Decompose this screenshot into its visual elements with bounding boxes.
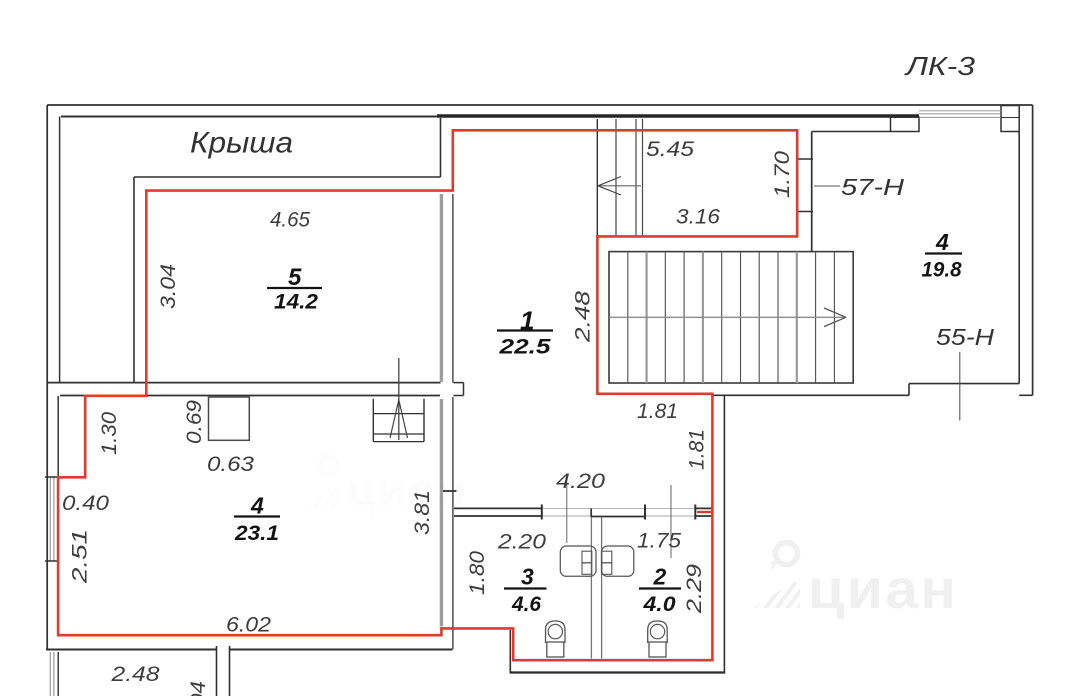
svg-text:4: 4 [250, 493, 264, 519]
svg-text:2.48: 2.48 [110, 662, 159, 686]
svg-text:4.20: 4.20 [556, 469, 605, 493]
svg-text:19.8: 19.8 [922, 259, 962, 282]
svg-text:0.63: 0.63 [207, 452, 254, 476]
svg-text:1.75: 1.75 [637, 529, 682, 553]
svg-text:4: 4 [935, 229, 949, 255]
svg-text:4.6: 4.6 [511, 593, 541, 616]
svg-text:циан: циан [808, 557, 958, 620]
svg-text:14.2: 14.2 [274, 290, 318, 314]
svg-text:3.16: 3.16 [676, 205, 720, 229]
svg-text:2: 2 [653, 564, 667, 590]
svg-text:22.5: 22.5 [498, 335, 551, 359]
svg-text:55-Н: 55-Н [936, 324, 994, 350]
svg-text:0.69: 0.69 [182, 400, 206, 444]
svg-text:1.30: 1.30 [97, 412, 121, 455]
svg-text:1.81: 1.81 [685, 429, 709, 470]
svg-text:Крыша: Крыша [190, 127, 293, 160]
svg-text:3.81: 3.81 [410, 490, 434, 535]
svg-text:5.45: 5.45 [646, 137, 695, 161]
svg-text:23.1: 23.1 [234, 522, 279, 545]
svg-text:1.80: 1.80 [465, 551, 489, 595]
svg-text:1.70: 1.70 [770, 151, 794, 198]
svg-text:2.20: 2.20 [497, 530, 546, 554]
svg-text:1.81: 1.81 [637, 399, 678, 423]
svg-text:ЛК-3: ЛК-3 [904, 51, 976, 81]
svg-text:2.48: 2.48 [571, 291, 595, 343]
svg-text:2.51: 2.51 [68, 529, 92, 584]
svg-text:3.04: 3.04 [156, 264, 180, 309]
svg-text:3: 3 [521, 564, 534, 590]
svg-text:1.04: 1.04 [186, 681, 210, 696]
svg-text:4.0: 4.0 [642, 593, 675, 616]
svg-text:6.02: 6.02 [226, 613, 271, 637]
svg-text:0.40: 0.40 [62, 491, 109, 515]
svg-text:2.29: 2.29 [682, 564, 706, 614]
svg-text:57-Н: 57-Н [841, 174, 904, 200]
svg-text:4.65: 4.65 [270, 208, 311, 232]
